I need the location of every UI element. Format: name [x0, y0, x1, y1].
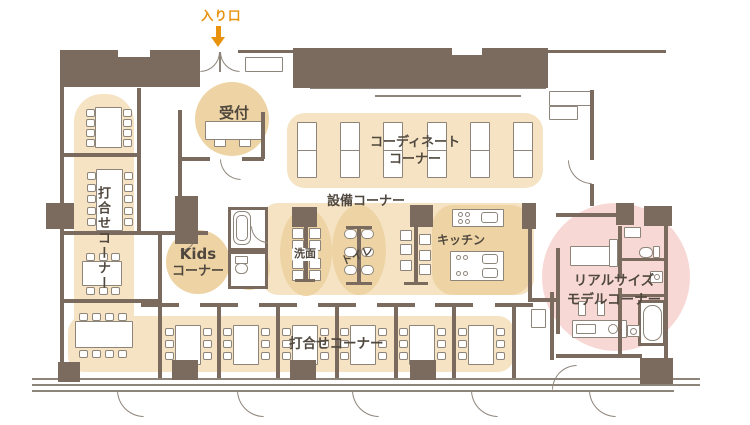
wall-segment	[414, 227, 418, 284]
door-arc	[237, 390, 264, 417]
furniture	[292, 228, 304, 239]
wall-segment	[318, 303, 356, 307]
wall-segment	[590, 90, 594, 160]
wall-segment	[346, 282, 372, 285]
model-label-line2: モデルコーナー	[558, 293, 670, 309]
wall-segment	[618, 226, 622, 278]
wall-segment	[175, 196, 198, 244]
window-line	[32, 384, 700, 386]
chair	[437, 352, 446, 360]
table	[175, 325, 201, 365]
furniture	[400, 260, 412, 271]
chair	[79, 350, 88, 358]
table	[233, 325, 259, 365]
burner-circle	[463, 255, 468, 260]
chair	[123, 139, 132, 147]
meeting-left-label: 打合せコーナー	[94, 186, 109, 298]
door-arc	[589, 390, 616, 417]
chair	[203, 328, 212, 336]
chair	[118, 350, 127, 358]
furniture	[214, 139, 226, 147]
burner-circle	[465, 219, 470, 224]
wall-segment	[141, 303, 179, 307]
meeting-bottom-label: 打合せコーナー	[289, 337, 384, 353]
furniture	[239, 139, 251, 147]
chair	[92, 350, 101, 358]
wall-segment	[664, 224, 668, 358]
window-line	[375, 95, 521, 97]
table	[409, 325, 435, 365]
chair	[165, 352, 174, 360]
wall-segment	[622, 258, 666, 261]
furniture	[482, 268, 498, 278]
chair	[111, 253, 120, 261]
chair	[86, 109, 95, 117]
reception-label: 受付	[212, 105, 256, 122]
chair	[203, 352, 212, 360]
utility-room	[228, 251, 268, 289]
wall-segment	[137, 88, 141, 232]
wall-segment	[644, 206, 672, 226]
wall-segment	[46, 203, 74, 229]
kids-label-line2: コーナー	[170, 265, 226, 280]
furniture	[549, 106, 578, 120]
wall-segment	[452, 306, 456, 378]
chair	[165, 340, 174, 348]
chair	[378, 352, 387, 360]
entrance-arrow-icon	[216, 26, 221, 37]
wall-segment	[261, 112, 265, 159]
chair	[123, 119, 132, 127]
furniture	[576, 324, 596, 334]
wall-segment	[616, 203, 634, 225]
wall-segment	[178, 157, 210, 161]
wall-segment	[528, 229, 532, 299]
wall-segment	[259, 303, 297, 307]
wall-segment	[242, 157, 264, 161]
burner-circle	[463, 271, 468, 276]
burner-circle	[630, 328, 637, 335]
wall-notch	[118, 50, 150, 57]
furniture	[235, 263, 248, 274]
chair	[282, 352, 291, 360]
door-arc	[220, 159, 241, 180]
chair	[123, 129, 132, 137]
furniture	[482, 254, 498, 264]
door-arc	[220, 52, 240, 72]
chair	[123, 109, 132, 117]
wall-segment	[556, 248, 560, 334]
door-arc	[552, 365, 577, 390]
furniture	[361, 265, 374, 275]
wall-segment	[62, 153, 138, 157]
burner-circle	[458, 212, 463, 217]
floor-plan: 入り口 受付 コーディネート コーナー 設備コーナー 打合せコーナー Kids …	[0, 0, 750, 425]
furniture	[419, 264, 431, 275]
wall-segment	[556, 213, 618, 217]
wall-segment	[410, 205, 433, 227]
chair	[86, 139, 95, 147]
chair	[437, 328, 446, 336]
furniture	[643, 305, 662, 341]
wall-segment	[410, 360, 436, 380]
chair	[458, 352, 467, 360]
window-line	[32, 378, 700, 380]
burner-circle	[608, 324, 618, 334]
chair	[437, 340, 446, 348]
wall-segment	[512, 306, 516, 378]
furniture	[653, 246, 660, 258]
wall-segment	[172, 360, 198, 380]
wall-segment	[522, 203, 536, 229]
furniture	[639, 247, 653, 258]
furniture	[361, 229, 374, 239]
kitchen-label: キッチン	[437, 234, 485, 248]
door-arc	[568, 160, 592, 184]
chair	[105, 313, 114, 321]
chair	[340, 328, 349, 336]
door-arc	[200, 52, 220, 72]
door-arc	[352, 390, 379, 417]
wall-segment	[640, 358, 673, 384]
chair	[496, 352, 505, 360]
chair	[223, 340, 232, 348]
chair	[124, 195, 133, 203]
panel-divider	[513, 150, 533, 152]
wall-segment	[590, 184, 594, 206]
furniture	[400, 230, 412, 241]
chair	[261, 352, 270, 360]
wall-segment	[548, 50, 666, 53]
chair	[124, 184, 133, 192]
wall-segment	[276, 306, 280, 378]
chair	[261, 340, 270, 348]
chair	[111, 287, 120, 295]
chair	[223, 328, 232, 336]
wall-segment	[495, 303, 533, 307]
chair	[261, 328, 270, 336]
chair	[86, 129, 95, 137]
door-arc	[471, 390, 498, 417]
furniture	[609, 239, 618, 267]
furniture	[344, 229, 357, 239]
chair	[340, 352, 349, 360]
chair	[320, 352, 329, 360]
furniture	[309, 228, 321, 239]
wall-segment	[238, 50, 294, 53]
furniture	[481, 212, 498, 223]
chair	[105, 350, 114, 358]
furniture	[549, 91, 591, 106]
equipment-label: 設備コーナー	[327, 195, 405, 210]
furniture	[245, 57, 283, 72]
chair	[399, 328, 408, 336]
chair	[124, 207, 133, 215]
chair	[124, 218, 133, 226]
kids-label-line1: Kids	[174, 246, 222, 263]
chair	[320, 328, 329, 336]
chair	[496, 328, 505, 336]
chair	[458, 328, 467, 336]
wall-segment	[556, 354, 642, 358]
furniture	[531, 309, 546, 328]
entrance-label: 入り口	[201, 9, 242, 23]
chair	[118, 313, 127, 321]
wall-segment	[394, 306, 398, 378]
chair	[458, 340, 467, 348]
chair	[378, 328, 387, 336]
chair	[79, 313, 88, 321]
wall-segment	[435, 303, 473, 307]
wall-segment	[58, 362, 80, 382]
chair	[496, 340, 505, 348]
wall-segment	[292, 207, 317, 227]
furniture	[205, 121, 262, 140]
furniture	[624, 227, 641, 238]
wall-segment	[62, 231, 162, 235]
chair	[124, 172, 133, 180]
wall-segment	[377, 303, 415, 307]
coordinate-label-line2: コーナー	[355, 153, 475, 168]
wall-segment	[404, 282, 428, 285]
wall-segment	[178, 110, 182, 200]
wall-segment	[293, 48, 548, 88]
furniture	[236, 215, 248, 241]
door-arc	[117, 390, 144, 417]
wall-segment	[217, 306, 221, 378]
coordinate-label-line1: コーディネート	[355, 136, 475, 151]
chair	[399, 352, 408, 360]
furniture	[419, 234, 431, 245]
furniture	[419, 250, 431, 261]
washroom-label: 洗面	[292, 248, 318, 261]
wall-segment	[290, 360, 316, 380]
chair	[282, 328, 291, 336]
furniture	[95, 107, 122, 148]
burner-circle	[456, 271, 461, 276]
chair	[86, 119, 95, 127]
burner-circle	[458, 219, 463, 224]
chair	[165, 328, 174, 336]
burner-circle	[456, 255, 461, 260]
wall-notch	[452, 48, 482, 55]
furniture	[75, 321, 133, 348]
wall-segment	[200, 303, 238, 307]
chair	[87, 172, 96, 180]
burner-circle	[465, 212, 470, 217]
wall-segment	[550, 292, 554, 360]
table	[468, 325, 494, 365]
model-label-line1: リアルサイズ	[564, 274, 664, 290]
wall-segment	[158, 231, 208, 235]
chair	[399, 340, 408, 348]
panel-divider	[297, 150, 317, 152]
chair	[92, 313, 101, 321]
chair	[223, 352, 232, 360]
furniture	[400, 244, 412, 255]
entrance-arrow-head-icon	[211, 37, 225, 47]
chair	[203, 340, 212, 348]
wall-segment	[295, 279, 315, 282]
